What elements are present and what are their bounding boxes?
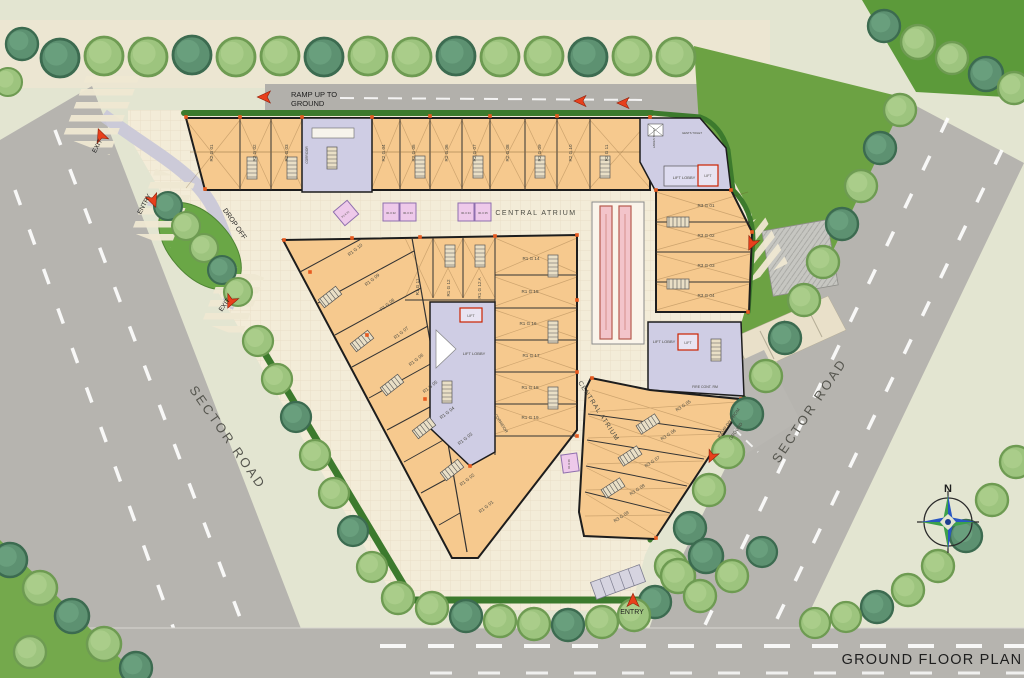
- ramp-up-label: GROUND: [291, 99, 325, 108]
- unit-label: R1 G 12 A: [477, 276, 482, 298]
- lift-label: LIFT: [467, 314, 475, 318]
- unit-label: R3 G 03: [697, 263, 715, 268]
- unit-label: R2 G 03: [284, 144, 289, 162]
- unit-label: R1 G 19: [521, 415, 539, 420]
- unit-label: R1 G 11: [415, 278, 420, 295]
- unit-label: R2 G 05: [411, 144, 416, 162]
- unit-label: R1 G 14: [522, 256, 540, 261]
- unit-label: R2 G 10: [568, 144, 573, 162]
- corridor-label: CORRIDOR: [305, 146, 309, 164]
- toilet-label: GENTS TOILET: [682, 131, 702, 135]
- unit-label: R2 G 04: [381, 144, 386, 162]
- lift-lobby-label: LIFT LOBBY: [463, 351, 486, 356]
- central-atrium-label: CENTRAL ATRIUM: [495, 210, 576, 217]
- unit-label: R2 G 07: [472, 144, 477, 162]
- kiosk-label: R1 K 04: [461, 211, 471, 215]
- unit-label: R2 G 08: [505, 144, 510, 162]
- lift-lobby-label: LIFT LOBBY: [653, 339, 676, 344]
- kiosk-label: R1 K 03: [403, 211, 413, 215]
- north-label: N: [944, 483, 952, 495]
- unit-label: R3 G 02: [697, 233, 715, 238]
- entry-label: ENTRY: [620, 609, 644, 616]
- unit-label: R1 G 17: [522, 353, 540, 358]
- kiosk-label: R1 K 06: [567, 459, 571, 469]
- escalators: [592, 202, 644, 344]
- unit-label: R2 G 06: [444, 144, 449, 162]
- unit-label: R2 G 11: [604, 144, 609, 161]
- toilet-label: LADIES TOILET: [652, 128, 656, 149]
- unit-label: R1 G 15: [521, 289, 539, 294]
- kiosk-label: R1 K 02: [386, 211, 396, 215]
- unit-label: R2 G 09: [537, 144, 542, 162]
- lift-label: LIFT: [704, 174, 712, 178]
- unit-label: R1 G 16: [519, 321, 537, 326]
- unit-label: R1 G 12: [446, 279, 451, 297]
- unit-label: R2 G 01: [209, 144, 214, 162]
- lift-lobby-label: LIFT LOBBY: [673, 175, 696, 180]
- ground-floor-plan: R2 G 01 R2 G 02 R2 G 03 R2 G 04 R2 G 05 …: [0, 0, 1024, 678]
- unit-label: R1 G 18: [521, 385, 539, 390]
- ramp-up-label: RAMP UP TO: [291, 90, 337, 99]
- unit-label: R2 G 02: [252, 144, 257, 162]
- page-title: GROUND FLOOR PLAN: [842, 652, 1023, 668]
- fire-room-label: FIRE CONT. RM: [692, 385, 718, 389]
- lift-label: LIFT: [684, 341, 692, 345]
- kiosk-label: R1 K 05: [478, 211, 488, 215]
- unit-label: R3 G 04: [697, 293, 715, 298]
- unit-label: R3 G 01: [697, 203, 715, 208]
